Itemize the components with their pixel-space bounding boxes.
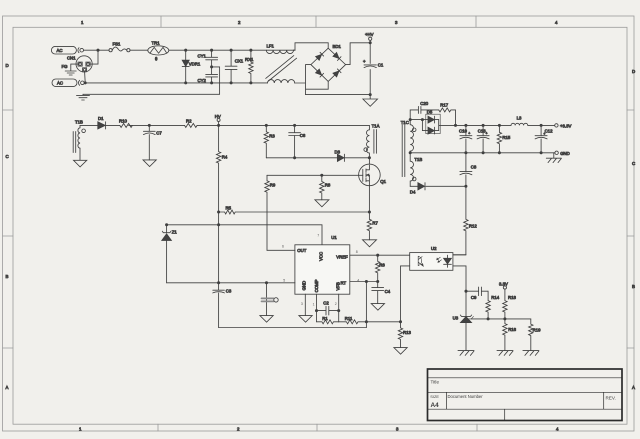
svg-text:1: 1: [313, 303, 315, 307]
svg-text:C2: C2: [323, 301, 329, 306]
svg-text:R8: R8: [325, 183, 331, 188]
svg-text:L3: L3: [517, 116, 522, 121]
svg-text:A4: A4: [431, 402, 440, 409]
svg-text:B: B: [632, 284, 635, 289]
svg-text:U1: U1: [331, 235, 337, 240]
svg-text:2: 2: [335, 302, 337, 306]
svg-text:CY1: CY1: [198, 54, 207, 59]
svg-text:C20: C20: [420, 101, 428, 106]
svg-text:7: 7: [317, 234, 319, 238]
svg-text:+: +: [468, 132, 470, 136]
svg-text:+: +: [363, 59, 366, 64]
svg-text:C8: C8: [471, 165, 477, 170]
svg-text:+3.3V: +3.3V: [560, 123, 571, 128]
svg-text:VCC: VCC: [318, 252, 323, 261]
svg-text:8: 8: [356, 250, 358, 254]
svg-text:3: 3: [395, 20, 398, 25]
svg-text:BD1: BD1: [333, 44, 342, 49]
svg-text:COMP: COMP: [314, 279, 319, 292]
svg-text:C: C: [6, 154, 9, 159]
svg-text:D: D: [632, 69, 635, 74]
svg-text:C4: C4: [385, 289, 391, 294]
svg-text:1: 1: [81, 20, 84, 25]
svg-text:R15: R15: [502, 135, 510, 140]
svg-text:C12: C12: [545, 128, 553, 133]
svg-text:R13: R13: [403, 330, 411, 335]
svg-text:R1: R1: [322, 316, 328, 321]
svg-text:R17: R17: [440, 103, 448, 108]
svg-text:θ: θ: [155, 57, 158, 62]
svg-text:U3: U3: [453, 316, 459, 321]
svg-text:6: 6: [282, 245, 284, 249]
svg-text:D3: D3: [335, 149, 341, 154]
svg-text:5: 5: [283, 278, 285, 282]
svg-text:D1: D1: [98, 116, 104, 121]
svg-text:D: D: [6, 63, 9, 68]
svg-text:R18: R18: [508, 295, 516, 300]
svg-text:CN1: CN1: [67, 56, 76, 61]
svg-text:FS1: FS1: [113, 42, 121, 47]
svg-text:+: +: [486, 132, 488, 136]
svg-text:U2: U2: [431, 246, 437, 251]
svg-text:FG: FG: [62, 64, 69, 69]
svg-text:Title: Title: [431, 380, 440, 385]
svg-text:AC: AC: [57, 48, 63, 53]
svg-text:R4: R4: [222, 154, 228, 159]
svg-text:Document Number: Document Number: [448, 394, 484, 399]
svg-text:A: A: [6, 385, 9, 390]
svg-text:R9: R9: [270, 183, 276, 188]
svg-text:R16: R16: [508, 327, 516, 332]
svg-text:R2: R2: [186, 118, 192, 123]
svg-text:R12: R12: [469, 223, 477, 228]
svg-text:C6: C6: [300, 133, 306, 138]
svg-text:VDR1: VDR1: [189, 61, 201, 66]
svg-text:C7: C7: [156, 130, 162, 135]
svg-text:Z1: Z1: [172, 230, 178, 235]
svg-text:AC: AC: [57, 81, 63, 86]
svg-text:R11: R11: [345, 316, 353, 321]
svg-text:C3: C3: [226, 289, 232, 294]
svg-text:B: B: [6, 274, 9, 279]
svg-text:LF1: LF1: [267, 43, 275, 48]
svg-text:2: 2: [238, 20, 241, 25]
svg-text:T1B: T1B: [75, 120, 83, 125]
svg-text:HV: HV: [215, 114, 221, 119]
svg-text:RT: RT: [341, 280, 347, 285]
svg-text:R14: R14: [491, 295, 499, 300]
svg-text:TR1: TR1: [152, 40, 161, 45]
svg-text:SIZE: SIZE: [430, 394, 439, 399]
svg-text:R5: R5: [226, 205, 232, 210]
svg-text:C10: C10: [459, 128, 467, 133]
svg-text:CX1: CX1: [235, 59, 244, 64]
svg-text:GND: GND: [302, 281, 307, 291]
svg-text:R6: R6: [379, 263, 385, 268]
svg-text:CY2: CY2: [198, 78, 207, 83]
svg-text:D5: D5: [427, 110, 433, 115]
svg-text:R3: R3: [269, 133, 275, 138]
svg-text:R10: R10: [119, 118, 127, 123]
svg-text:C1: C1: [378, 63, 384, 68]
svg-text:+HV: +HV: [365, 32, 374, 37]
svg-text:REV.: REV.: [606, 396, 616, 401]
svg-text:4: 4: [555, 20, 558, 25]
svg-text:C9: C9: [471, 295, 477, 300]
svg-text:T1A: T1A: [372, 123, 380, 128]
svg-text:3: 3: [301, 302, 303, 306]
svg-text:A: A: [632, 385, 635, 390]
svg-text:R19: R19: [533, 327, 541, 332]
svg-text:R7: R7: [372, 221, 378, 226]
svg-text:C: C: [632, 161, 635, 166]
svg-text:OUT: OUT: [297, 248, 306, 253]
svg-text:VREF: VREF: [336, 255, 348, 260]
svg-text:Q1: Q1: [380, 179, 386, 184]
svg-text:3.3V: 3.3V: [499, 282, 508, 287]
svg-text:RX1: RX1: [245, 57, 254, 62]
svg-text:+: +: [543, 132, 545, 136]
svg-text:GND: GND: [560, 151, 570, 156]
svg-text:D4: D4: [410, 190, 416, 195]
svg-text:T1B: T1B: [414, 157, 422, 162]
